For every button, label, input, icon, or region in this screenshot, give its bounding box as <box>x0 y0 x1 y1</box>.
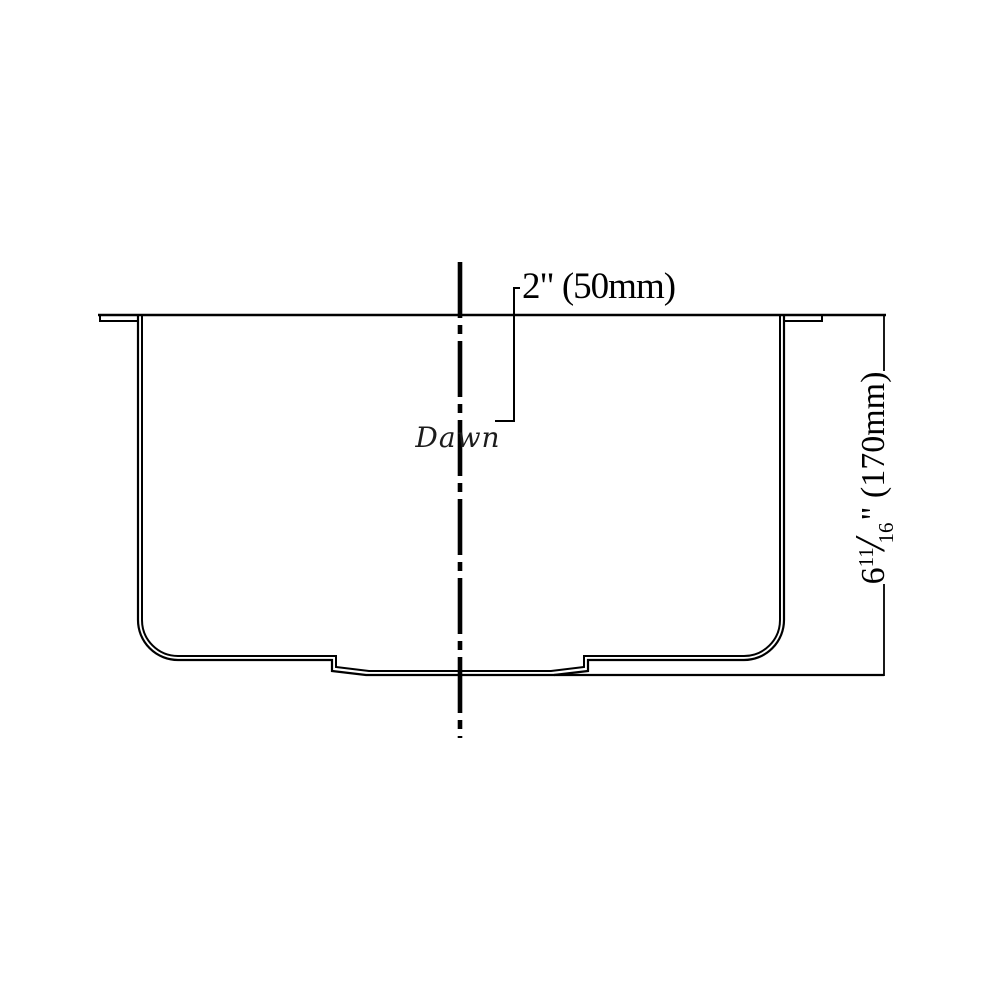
depth-dim-metric: (170mm) <box>855 372 892 507</box>
depth-dim-whole: 6 <box>855 567 892 584</box>
top-dimension-label: 2" (50mm) <box>522 266 675 307</box>
sink-section-drawing: 2" (50mm) 611/16" (170mm) Dawn <box>0 0 1000 1000</box>
depth-dim-denominator: 16 <box>874 523 898 544</box>
depth-dimension-label-group: 611/16" (170mm) <box>848 372 898 585</box>
top-dimension-leader-line <box>495 288 520 421</box>
depth-dim-unit: " <box>855 507 892 521</box>
sink-outer-profile-right-bottom <box>554 315 784 675</box>
depth-dimension-label: 611/16" (170mm) <box>848 372 898 585</box>
technical-drawing-page: 2" (50mm) 611/16" (170mm) Dawn <box>0 0 1000 1000</box>
sink-outer-profile-left-bottom <box>138 315 884 675</box>
dawn-logo: Dawn <box>414 421 500 454</box>
